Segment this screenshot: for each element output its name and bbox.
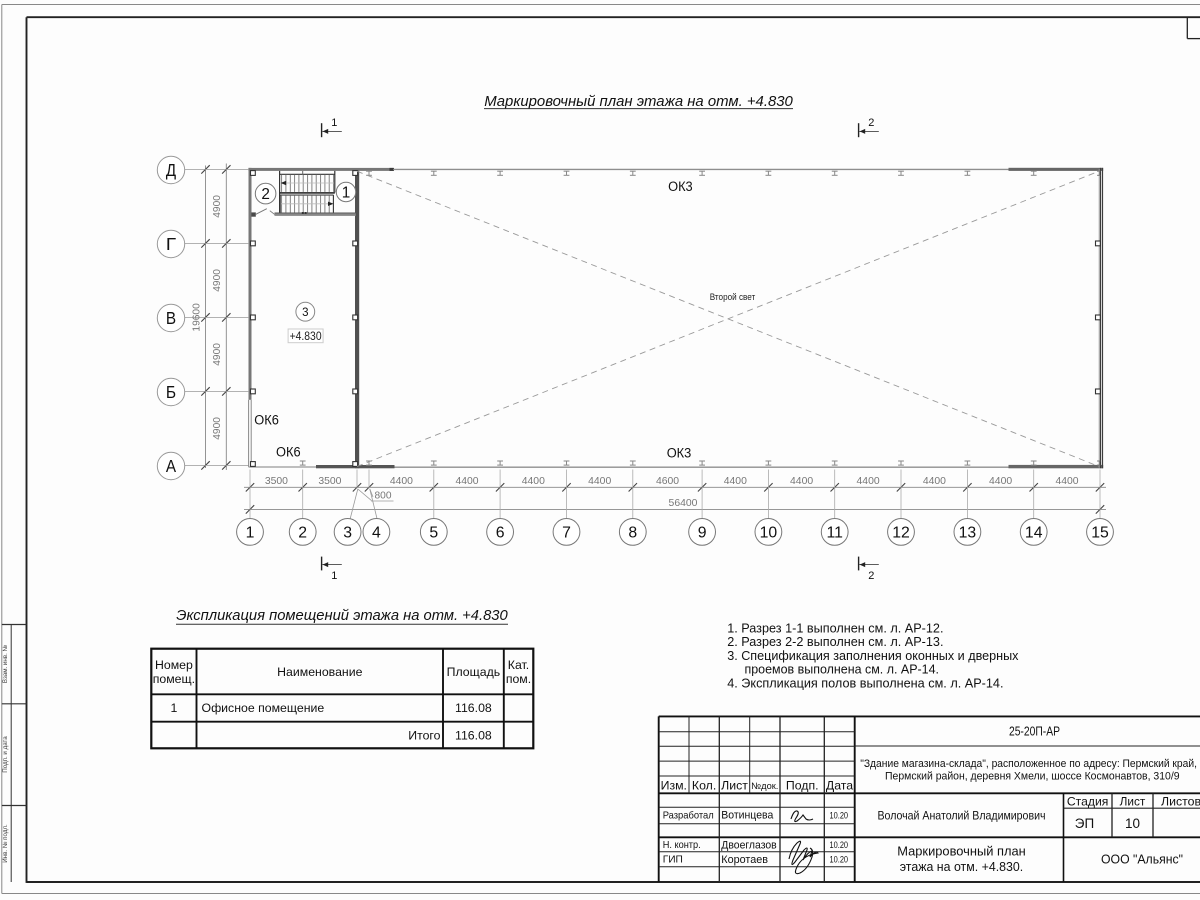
svg-text:ЭП: ЭП (1075, 816, 1094, 831)
svg-text:ОК3: ОК3 (668, 179, 693, 194)
svg-text:3500: 3500 (318, 476, 341, 487)
svg-text:Лист: Лист (1120, 795, 1146, 809)
svg-text:Наименование: Наименование (277, 665, 362, 679)
svg-text:4400: 4400 (923, 476, 946, 487)
svg-text:Д: Д (166, 160, 177, 180)
svg-text:Н. контр.: Н. контр. (663, 840, 701, 851)
svg-text:"Здание магазина-склада", расп: "Здание магазина-склада", расположенное … (860, 758, 1197, 770)
svg-text:Офисное помещение: Офисное помещение (202, 701, 325, 715)
svg-text:4400: 4400 (1055, 476, 1078, 487)
svg-text:4400: 4400 (857, 476, 880, 487)
svg-text:116.08: 116.08 (455, 728, 492, 742)
svg-text:№док.: №док. (751, 781, 778, 791)
svg-text:4900: 4900 (212, 195, 223, 218)
svg-text:Подп. и дата: Подп. и дата (2, 736, 9, 773)
svg-text:Кол.: Кол. (692, 778, 716, 792)
svg-text:10.20: 10.20 (830, 840, 849, 850)
svg-text:1: 1 (342, 184, 351, 201)
svg-text:2: 2 (298, 525, 307, 542)
svg-text:Вотинцева: Вотинцева (721, 810, 774, 822)
svg-text:Г: Г (166, 234, 176, 254)
svg-text:4400: 4400 (390, 476, 413, 487)
svg-text:6: 6 (496, 525, 505, 542)
svg-text:Листов: Листов (1161, 795, 1200, 809)
svg-text:1: 1 (331, 570, 337, 582)
svg-text:4400: 4400 (522, 476, 545, 487)
svg-text:проемов выполнена см. л. АР-14: проемов выполнена см. л. АР-14. (745, 662, 940, 677)
svg-text:Кат.: Кат. (508, 658, 529, 672)
svg-text:Лист: Лист (721, 778, 748, 792)
svg-text:25-20П-АР: 25-20П-АР (1009, 724, 1060, 738)
svg-text:4600: 4600 (656, 476, 679, 487)
svg-text:ГИП: ГИП (663, 855, 683, 866)
svg-text:11: 11 (826, 525, 843, 542)
svg-text:9: 9 (698, 525, 707, 542)
svg-text:1: 1 (331, 117, 337, 129)
svg-text:116.08: 116.08 (455, 701, 492, 715)
svg-text:2: 2 (261, 186, 270, 203)
svg-text:3. Спецификация заполнения око: 3. Спецификация заполнения оконных и две… (727, 648, 1019, 663)
svg-text:Номер: Номер (155, 658, 193, 672)
svg-text:Подп.: Подп. (786, 778, 819, 792)
svg-text:Инв. № подл.: Инв. № подл. (2, 824, 9, 863)
svg-text:14: 14 (1025, 525, 1043, 542)
svg-text:Второй свет: Второй свет (710, 292, 756, 303)
svg-text:4400: 4400 (790, 476, 813, 487)
svg-text:Маркировочный план этажа на от: Маркировочный план этажа на отм. +4.830 (484, 94, 793, 110)
svg-text:3: 3 (343, 525, 352, 542)
svg-text:10.20: 10.20 (830, 810, 849, 820)
svg-text:1. Разрез 1-1 выполнен см. л.: 1. Разрез 1-1 выполнен см. л. АР-12. (727, 620, 943, 635)
svg-text:13: 13 (959, 525, 977, 542)
svg-text:2: 2 (868, 570, 874, 582)
svg-text:1: 1 (246, 525, 255, 542)
svg-text:8: 8 (628, 525, 637, 542)
svg-text:Взам. инв. №: Взам. инв. № (2, 644, 9, 683)
svg-text:4900: 4900 (212, 343, 223, 366)
svg-text:ОК3: ОК3 (667, 445, 692, 460)
svg-text:Стадия: Стадия (1067, 795, 1109, 809)
svg-text:3: 3 (302, 307, 308, 319)
svg-text:12: 12 (892, 525, 910, 542)
svg-text:7: 7 (562, 525, 571, 542)
svg-text:19600: 19600 (192, 303, 203, 332)
svg-text:800: 800 (375, 491, 393, 502)
svg-text:Дата: Дата (826, 778, 853, 792)
svg-text:ОК6: ОК6 (254, 413, 279, 428)
svg-text:15: 15 (1091, 525, 1109, 542)
svg-text:10: 10 (1125, 816, 1140, 831)
svg-text:Волочай Анатолий Владимирович: Волочай Анатолий Владимирович (878, 809, 1046, 823)
svg-text:Экспликация помещений этажа на: Экспликация помещений этажа на отм. +4.8… (176, 608, 508, 624)
svg-text:Площадь: Площадь (447, 665, 501, 679)
svg-text:4: 4 (372, 525, 381, 542)
svg-text:56400: 56400 (669, 498, 698, 509)
svg-text:А: А (166, 456, 177, 476)
svg-text:4900: 4900 (212, 269, 223, 292)
svg-text:ООО "Альянс": ООО "Альянс" (1101, 852, 1183, 866)
svg-text:Б: Б (166, 382, 176, 402)
svg-text:Пермский район, деревня Хмели,: Пермский район, деревня Хмели, шоссе Кос… (885, 770, 1180, 782)
svg-text:Маркировочный план: Маркировочный план (897, 844, 1026, 859)
svg-text:2: 2 (868, 117, 874, 129)
svg-text:помещ.: помещ. (153, 672, 195, 686)
svg-text:3500: 3500 (265, 476, 288, 487)
svg-text:Разработал: Разработал (663, 809, 714, 821)
svg-text:10.20: 10.20 (830, 855, 849, 865)
svg-text:4. Экспликация полов выполнена: 4. Экспликация полов выполнена см. л. АР… (727, 676, 1003, 691)
svg-text:Изм.: Изм. (661, 778, 687, 792)
svg-text:5: 5 (429, 525, 438, 542)
svg-text:4400: 4400 (588, 476, 611, 487)
svg-text:10: 10 (760, 525, 778, 542)
svg-text:ОК6: ОК6 (276, 445, 301, 460)
svg-text:4900: 4900 (212, 417, 223, 440)
svg-text:Двоеглазов: Двоеглазов (721, 839, 777, 851)
svg-text:2. Разрез 2-2 выполнен см. л.: 2. Разрез 2-2 выполнен см. л. АР-13. (727, 634, 943, 649)
svg-text:+4.830: +4.830 (290, 329, 322, 343)
svg-text:4400: 4400 (724, 476, 747, 487)
svg-text:Итого: Итого (408, 728, 440, 742)
svg-text:пом.: пом. (506, 672, 531, 686)
svg-text:1: 1 (170, 701, 177, 715)
svg-text:В: В (166, 308, 176, 328)
svg-text:4400: 4400 (455, 476, 478, 487)
svg-text:Коротаев: Коротаев (721, 854, 768, 866)
svg-text:этажа на отм. +4.830.: этажа на отм. +4.830. (900, 859, 1024, 874)
svg-text:4400: 4400 (989, 476, 1012, 487)
